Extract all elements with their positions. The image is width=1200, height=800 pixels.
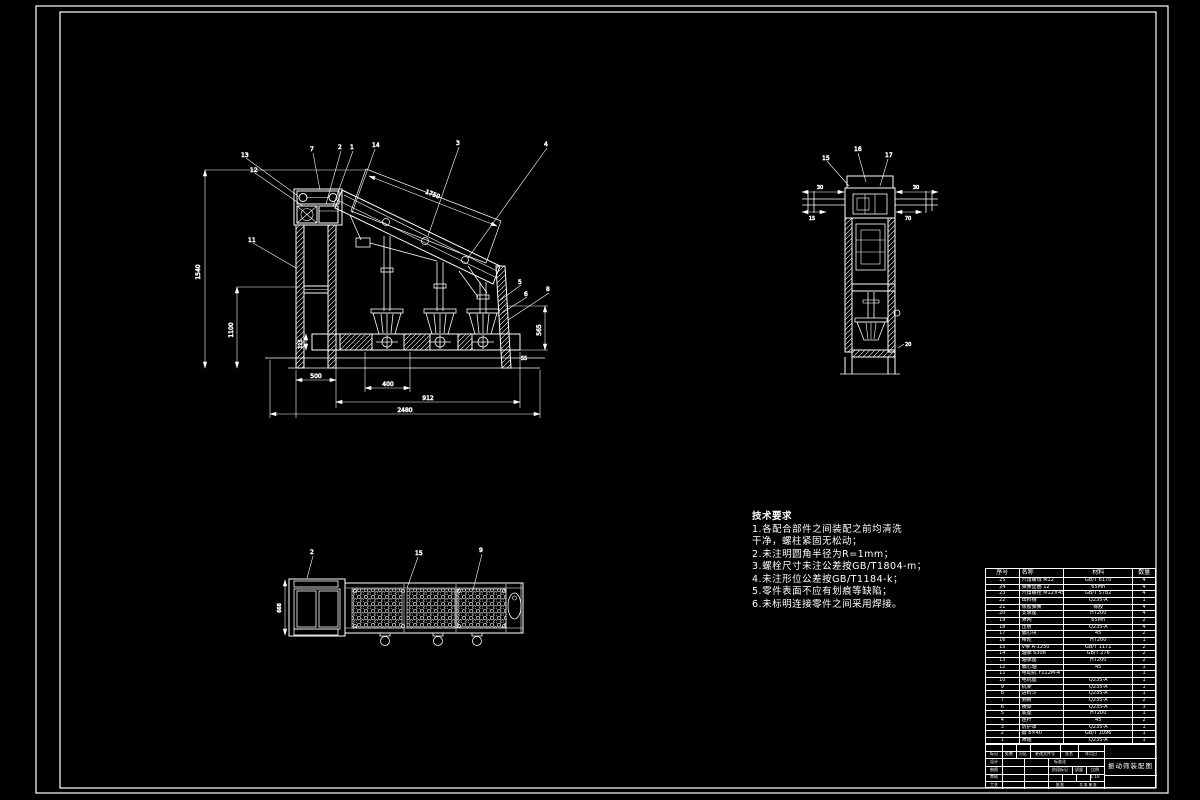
parts-cell: Q235-A: [1064, 725, 1133, 731]
parts-cell: 16: [986, 638, 1020, 644]
parts-table-row: 9机架Q235-A1: [986, 684, 1155, 691]
parts-table-row: 3防护罩Q235-A1: [986, 724, 1155, 731]
parts-cell: 4: [1133, 585, 1155, 591]
svg-text:912: 912: [422, 395, 434, 402]
svg-text:2: 2: [310, 549, 314, 556]
svg-text:15: 15: [822, 155, 830, 162]
tech-requirement-line: 6.未标明连接零件之间采用焊接。: [752, 599, 1002, 612]
parts-cell: 12: [986, 665, 1020, 671]
parts-cell: 9: [986, 685, 1020, 691]
side-end-view: 30 15 30 70 20 15 16 17: [802, 146, 938, 374]
sv-column: [840, 218, 900, 374]
parts-header-cell: 数量: [1133, 569, 1155, 577]
parts-cell: 5: [986, 711, 1020, 717]
parts-table-row: 25六角螺母 M12GB/T 61704: [986, 577, 1155, 584]
parts-cell: 21: [986, 605, 1020, 611]
svg-text:5: 5: [518, 279, 522, 286]
parts-cell: 橡胶弹簧: [1020, 605, 1065, 611]
parts-cell: HT200: [1064, 711, 1133, 717]
tb-label-process: 工艺: [986, 781, 1002, 789]
svg-text:14: 14: [372, 142, 380, 149]
parts-table-row: 12偏心轴451: [986, 664, 1155, 671]
svg-text:12: 12: [250, 167, 258, 174]
parts-cell: 六角螺母 M12: [1020, 578, 1065, 584]
parts-cell: 偏心块: [1020, 631, 1065, 637]
parts-table-row: 15V带 A-1250GB/T 11712: [986, 644, 1155, 651]
parts-cell: 20: [986, 611, 1020, 617]
parts-cell: 4: [1133, 591, 1155, 597]
parts-cell: 24: [986, 585, 1020, 591]
svg-text:30: 30: [913, 185, 919, 191]
tech-requirement-line: 1.各配合部件之间装配之前均清洗: [752, 524, 1002, 537]
parts-cell: 底座: [1020, 711, 1065, 717]
parts-cell: 支承座: [1020, 611, 1065, 617]
tb-label-mass: 质量: [1072, 766, 1086, 774]
inclined-chute: [335, 169, 501, 297]
svg-text:55: 55: [521, 356, 527, 362]
parts-cell: 电动机 Y112M-4: [1020, 671, 1065, 677]
parts-cell: 侧板: [1020, 698, 1065, 704]
parts-cell: 2: [1133, 698, 1155, 704]
parts-cell: 65Mn: [1064, 618, 1133, 624]
parts-cell: 出料槽: [1020, 598, 1065, 604]
parts-cell: 3: [1133, 705, 1155, 711]
tb-label-sheet: 共 张 第 张: [1072, 781, 1104, 789]
parts-cell: 1: [1133, 691, 1155, 697]
tech-requirement-line: 干净，螺柱紧固无松动；: [752, 536, 1002, 549]
parts-cell: 轴承座: [1020, 658, 1065, 664]
parts-header-cell: 名称: [1020, 569, 1065, 577]
pv-drive-box: [289, 579, 345, 636]
tb-label-standard: 标准化: [1048, 758, 1072, 766]
svg-text:500: 500: [310, 373, 322, 380]
svg-text:7: 7: [310, 146, 314, 153]
svg-text:6: 6: [524, 291, 528, 298]
tb-value-scale: 1:10: [1086, 774, 1104, 781]
tb-line: [1104, 775, 1157, 776]
pv-callouts: 2 15 9: [307, 547, 483, 590]
parts-table-header: 序号名称材料数量: [986, 569, 1155, 577]
svg-text:1100: 1100: [228, 322, 235, 337]
technical-requirements: 技术要求 1.各配合部件之间装配之前均清洗干净，螺柱紧固无松动；2.未注明圆角半…: [752, 511, 1002, 611]
bolt-symbol: [376, 335, 494, 349]
parts-table-row: 23六角螺栓 M12×45GB/T 57824: [986, 590, 1155, 597]
svg-text:16: 16: [854, 146, 862, 153]
parts-cell: 17: [986, 631, 1020, 637]
parts-cell: 7: [986, 698, 1020, 704]
parts-cell: 10: [986, 678, 1020, 684]
sv-head: [845, 176, 895, 218]
drawing-title: 振动筛装配图: [1104, 758, 1157, 775]
parts-table-row: 2键 8×40GB/T 10961: [986, 730, 1155, 737]
sv-callouts: 15 16 17: [822, 146, 893, 186]
parts-cell: 65Mn: [1064, 585, 1133, 591]
parts-table-row: 14轴承 6308GB/T 2762: [986, 650, 1155, 657]
svg-text:70: 70: [905, 216, 911, 222]
tb-label-stage: 阶段标记: [1048, 766, 1072, 774]
parts-table-row: 17偏心块452: [986, 630, 1155, 637]
parts-cell: 橡胶: [1064, 605, 1133, 611]
svg-text:668: 668: [277, 603, 283, 613]
parts-table-row: 5底座HT2001: [986, 710, 1155, 717]
parts-list-table: 序号名称材料数量25六角螺母 M12GB/T 6170424弹簧垫圈 1265M…: [985, 568, 1156, 745]
motor-unit: [294, 189, 342, 225]
parts-cell: 压板: [1020, 625, 1065, 631]
parts-cell: 1: [1133, 725, 1155, 731]
parts-cell: Q235-A: [1064, 685, 1133, 691]
parts-cell: GB/T 1096: [1064, 731, 1133, 737]
tech-requirements-title: 技术要求: [752, 511, 1002, 524]
parts-cell: GB/T 1171: [1064, 645, 1133, 651]
tb-label-design: 设计: [986, 758, 1002, 766]
parts-cell: Q235-A: [1064, 625, 1133, 631]
svg-text:2480: 2480: [397, 407, 412, 414]
parts-cell: 机架: [1020, 685, 1065, 691]
tech-requirement-line: 2.未注明圆角半径为R=1mm；: [752, 549, 1002, 562]
parts-cell: 2: [1133, 651, 1155, 657]
svg-text:13: 13: [241, 152, 249, 159]
parts-cell: 防护罩: [1020, 725, 1065, 731]
parts-table-row: 13轴承座HT2002: [986, 657, 1155, 664]
parts-cell: 25: [986, 578, 1020, 584]
parts-table-row: 16带轮HT2001: [986, 637, 1155, 644]
parts-table-row: 20支承座HT2004: [986, 610, 1155, 617]
tb-label-draft: 制图: [986, 766, 1002, 774]
parts-cell: 2: [986, 731, 1020, 737]
parts-cell: 2: [1133, 718, 1155, 724]
svg-text:1: 1: [350, 144, 354, 151]
parts-header-cell: 序号: [986, 569, 1020, 577]
parts-cell: 14: [986, 651, 1020, 657]
tb-line: [1024, 758, 1025, 789]
parts-cell: 1: [1133, 678, 1155, 684]
parts-cell: 1: [1133, 731, 1155, 737]
parts-cell: Q235-A: [1064, 691, 1133, 697]
parts-cell: 2: [1133, 658, 1155, 664]
parts-cell: 筛网: [1020, 618, 1065, 624]
tb-label-count: 处数: [1002, 751, 1016, 758]
parts-cell: GB/T 6170: [1064, 578, 1133, 584]
tb-line: [1062, 774, 1063, 781]
tb-label-check: 审核: [986, 774, 1002, 781]
svg-text:8: 8: [546, 286, 550, 293]
tb-label-approve: 批准: [1048, 781, 1072, 789]
parts-table-row: 10电机座Q235-A1: [986, 677, 1155, 684]
parts-cell: 1: [1133, 665, 1155, 671]
parts-cell: 15: [986, 645, 1020, 651]
tech-requirement-line: 4.未注形位公差按GB/T1184-k；: [752, 574, 1002, 587]
parts-cell: Q235-A: [1064, 678, 1133, 684]
parts-cell: 偏心轴: [1020, 665, 1065, 671]
svg-text:4: 4: [544, 141, 548, 148]
parts-cell: [1064, 671, 1133, 677]
parts-cell: Q235-A: [1064, 598, 1133, 604]
parts-cell: 45: [1064, 665, 1133, 671]
parts-cell: 11: [986, 671, 1020, 677]
parts-table-row: 24弹簧垫圈 1265Mn4: [986, 584, 1155, 591]
main-front-view: 1540 1100 1750 500 400 912 2480 565 55: [195, 140, 550, 418]
tb-label-date: 年月日: [1078, 751, 1104, 758]
parts-cell: 轴承 6308: [1020, 651, 1065, 657]
parts-cell: 带轮: [1020, 638, 1065, 644]
parts-cell: Q235-A: [1064, 698, 1133, 704]
svg-text:1540: 1540: [195, 264, 202, 279]
tb-label-change-doc: 更改文件号: [1030, 751, 1060, 758]
parts-cell: 22: [986, 598, 1020, 604]
svg-text:15: 15: [415, 550, 423, 557]
parts-cell: 45: [1064, 631, 1133, 637]
parts-table-row: 19筛网65Mn2: [986, 617, 1155, 624]
parts-cell: 连杆: [1020, 718, 1065, 724]
parts-cell: 横梁: [1020, 705, 1065, 711]
parts-cell: 1: [1133, 685, 1155, 691]
svg-text:400: 400: [382, 381, 394, 388]
parts-cell: 6: [986, 705, 1020, 711]
parts-cell: Q235-A: [1064, 705, 1133, 711]
svg-text:2: 2: [338, 144, 342, 151]
svg-text:15: 15: [809, 216, 815, 222]
pv-dimensions: 668: [277, 580, 285, 635]
parts-cell: 1: [1133, 671, 1155, 677]
sv-dimensions: 30 15 30 70 20: [802, 185, 938, 348]
parts-cell: HT200: [1064, 638, 1133, 644]
cad-drawing-page: 1540 1100 1750 500 400 912 2480 565 55: [0, 0, 1200, 800]
parts-cell: HT200: [1064, 658, 1133, 664]
base-frame: [312, 334, 520, 350]
parts-cell: 4: [1133, 611, 1155, 617]
parts-cell: 1: [1133, 598, 1155, 604]
tech-requirement-line: 5.零件表面不应有划痕等缺陷；: [752, 586, 1002, 599]
tb-label-sign: 签名: [1060, 751, 1078, 758]
plan-top-view: 668 2 15 9: [277, 547, 523, 646]
parts-cell: 弹簧垫圈 12: [1020, 585, 1065, 591]
parts-table-row: 8进料斗Q235-A1: [986, 690, 1155, 697]
parts-cell: 8: [986, 691, 1020, 697]
parts-table-row: 7侧板Q235-A2: [986, 697, 1155, 704]
svg-text:115: 115: [298, 339, 304, 349]
parts-cell: 1: [1133, 711, 1155, 717]
parts-cell: V带 A-1250: [1020, 645, 1065, 651]
svg-text:17: 17: [885, 152, 893, 159]
pv-screen-bed: [345, 583, 523, 633]
tech-requirement-line: 3.螺栓尺寸未注公差按GB/T1804-m；: [752, 561, 1002, 574]
parts-cell: 4: [1133, 605, 1155, 611]
parts-cell: 2: [1133, 645, 1155, 651]
parts-header-cell: 材料: [1064, 569, 1133, 577]
right-wall: [496, 266, 511, 368]
parts-table-row: 21橡胶弹簧橡胶4: [986, 604, 1155, 611]
tb-line: [1076, 774, 1077, 781]
pv-feet: [380, 633, 482, 646]
parts-cell: 键 8×40: [1020, 731, 1065, 737]
title-block: 标记 处数 分区 更改文件号 签名 年月日 设计 制图 审核 工艺 标准化 阶段…: [985, 743, 1156, 788]
parts-cell: 13: [986, 658, 1020, 664]
parts-cell: 六角螺栓 M12×45: [1020, 591, 1065, 597]
svg-text:9: 9: [479, 547, 483, 554]
parts-cell: 电机座: [1020, 678, 1065, 684]
parts-table-row: 4连杆452: [986, 717, 1155, 724]
parts-cell: 4: [1133, 625, 1155, 631]
svg-text:30: 30: [817, 185, 823, 191]
svg-text:3: 3: [456, 140, 460, 147]
main-dimensions: 1540 1100 1750 500 400 912 2480 565 55: [195, 170, 548, 418]
parts-cell: 进料斗: [1020, 691, 1065, 697]
tb-label-scale: 比例: [1086, 766, 1104, 774]
svg-text:565: 565: [536, 324, 543, 336]
parts-table-row: 18压板Q235-A4: [986, 624, 1155, 631]
parts-cell: 45: [1064, 718, 1133, 724]
spring-funnels: [371, 309, 499, 334]
tb-label-zone: 分区: [1016, 751, 1030, 758]
parts-cell: 2: [1133, 618, 1155, 624]
svg-text:20: 20: [905, 342, 911, 348]
tech-requirements-lines: 1.各配合部件之间装配之前均清洗干净，螺柱紧固无松动；2.未注明圆角半径为R=1…: [752, 524, 1002, 612]
tb-label-mark: 标记: [986, 751, 1002, 758]
svg-text:11: 11: [248, 237, 256, 244]
parts-cell: 2: [1133, 631, 1155, 637]
parts-cell: GB/T 276: [1064, 651, 1133, 657]
parts-table-row: 22出料槽Q235-A1: [986, 597, 1155, 604]
parts-cell: 19: [986, 618, 1020, 624]
parts-cell: 1: [1133, 638, 1155, 644]
parts-cell: 18: [986, 625, 1020, 631]
parts-cell: HT200: [1064, 611, 1133, 617]
parts-table-row: 11电动机 Y112M-41: [986, 670, 1155, 677]
parts-table-row: 6横梁Q235-A3: [986, 704, 1155, 711]
parts-cell: 3: [986, 725, 1020, 731]
parts-cell: 4: [1133, 578, 1155, 584]
parts-cell: GB/T 5782: [1064, 591, 1133, 597]
parts-cell: 4: [986, 718, 1020, 724]
parts-cell: 23: [986, 591, 1020, 597]
